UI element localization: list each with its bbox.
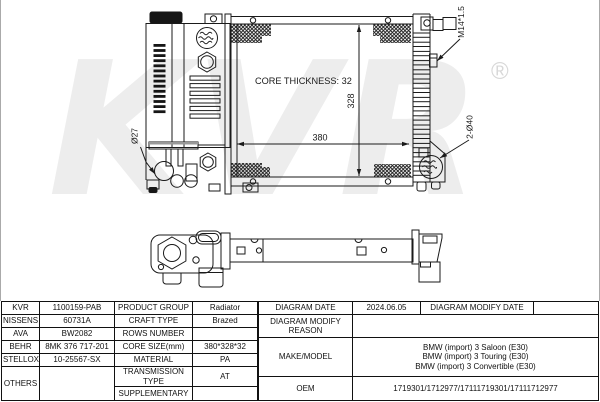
oem-label: OEM: [259, 377, 353, 401]
spec-label: TRANSMISSION TYPE: [115, 367, 193, 387]
right-tank: [413, 14, 456, 191]
oem-value: 1719301/1712977/17111719301/17111712977: [353, 377, 599, 401]
modify-date-value: [534, 302, 599, 315]
spec-value: [193, 387, 258, 401]
core-thickness-label: CORE THICKNESS: 32: [255, 76, 352, 86]
spec-label: PRODUCT GROUP: [115, 302, 193, 315]
spec-label: CRAFT TYPE: [115, 315, 193, 328]
brand-name: AVA: [2, 328, 40, 341]
top-view-left-tank: [151, 235, 213, 273]
brand-part-number: 10-25567-SX: [40, 354, 115, 367]
top-view-drawing: [151, 230, 442, 287]
modify-reason-value: [353, 315, 599, 338]
bottom-fittings: [146, 142, 225, 193]
modify-reason-label: DIAGRAM MODIFY REASON: [259, 315, 353, 338]
brand-name: BEHR: [2, 341, 40, 354]
callout-d27: Ø27: [130, 128, 156, 174]
right-top-bracket: [421, 17, 433, 30]
spec-value: AT: [193, 367, 258, 387]
top-view-right-tank: [419, 234, 442, 262]
spec-value: PA: [193, 354, 258, 367]
spec-value: Radiator: [193, 302, 258, 315]
brand-part-number: BW2082: [40, 328, 115, 341]
pipe-diameter-label: 2-Ø40: [465, 115, 475, 139]
make-model-line: BMW (import) 3 Touring (E30): [354, 352, 597, 361]
cross-reference-table: KVR 1100159-PAB PRODUCT GROUP Radiator N…: [1, 301, 258, 401]
core: [231, 17, 413, 187]
core-hatching: [231, 24, 411, 177]
modify-date-label: DIAGRAM MODIFY DATE: [421, 302, 534, 315]
radiator-technical-drawing: 328 380 CORE THICKNESS: 32 M14*1.5 2-Ø40: [0, 0, 600, 301]
left-tank: [146, 12, 230, 193]
diagram-info-table: DIAGRAM DATE 2024.06.05 DIAGRAM MODIFY D…: [258, 301, 599, 401]
spec-label: CORE SIZE(mm): [115, 341, 193, 354]
brand-part-number: 60731A: [40, 315, 115, 328]
spec-label: ROWS NUMBER: [115, 328, 193, 341]
top-view-left-plate: [221, 233, 230, 269]
part-info-table: KVR 1100159-PAB PRODUCT GROUP Radiator N…: [1, 301, 599, 401]
make-model-line: BMW (import) 3 Convertible (E30): [354, 362, 597, 371]
brand-name: STELLOX: [2, 354, 40, 367]
brand-part-number: 8MK 376 717-201: [40, 341, 115, 354]
brand-name: NISSENS: [2, 315, 40, 328]
dimension-328: 328: [346, 25, 361, 176]
brand-name: OTHERS: [2, 367, 40, 401]
spec-label: MATERIAL: [115, 354, 193, 367]
inlet-thread-label: M14*1.5: [456, 6, 466, 38]
callout-m14: M14*1.5: [437, 6, 466, 61]
tank-fins: [154, 44, 166, 113]
core-width-label: 380: [312, 133, 327, 143]
outlet-diameter-label: Ø27: [130, 128, 140, 144]
make-model-value: BMW (import) 3 Saloon (E30) BMW (import)…: [353, 338, 599, 377]
pipe-stub-2: [199, 268, 223, 287]
top-view-body: [230, 239, 413, 262]
core-height-label: 328: [346, 93, 356, 108]
tank-ribs: [190, 76, 220, 118]
outlet-pipe: [155, 162, 174, 181]
diagram-date-value: 2024.06.05: [353, 302, 421, 315]
make-model-line: BMW (import) 3 Saloon (E30): [354, 343, 597, 352]
spec-label: SUPPLEMENTARY: [115, 387, 193, 401]
spec-value: Brazed: [193, 315, 258, 328]
front-view-drawing: 328 380 CORE THICKNESS: 32 M14*1.5 2-Ø40: [130, 6, 475, 194]
diagram-page: KVR ®: [0, 0, 600, 402]
dimension-380: 380: [237, 133, 409, 147]
spec-value: [193, 328, 258, 341]
pipe-stub-1: [163, 273, 181, 284]
brand-name: KVR: [2, 302, 40, 315]
filler-cap: [150, 12, 182, 23]
make-model-label: MAKE/MODEL: [259, 338, 353, 377]
spec-value: 380*328*32: [193, 341, 258, 354]
brand-part-number: 1100159-PAB: [40, 302, 115, 315]
thread-fitting: [430, 54, 438, 67]
callout-2d40: 2-Ø40: [440, 115, 475, 158]
diagram-date-label: DIAGRAM DATE: [259, 302, 353, 315]
brand-part-number: [40, 367, 115, 401]
right-tank-ribs: [413, 33, 430, 175]
